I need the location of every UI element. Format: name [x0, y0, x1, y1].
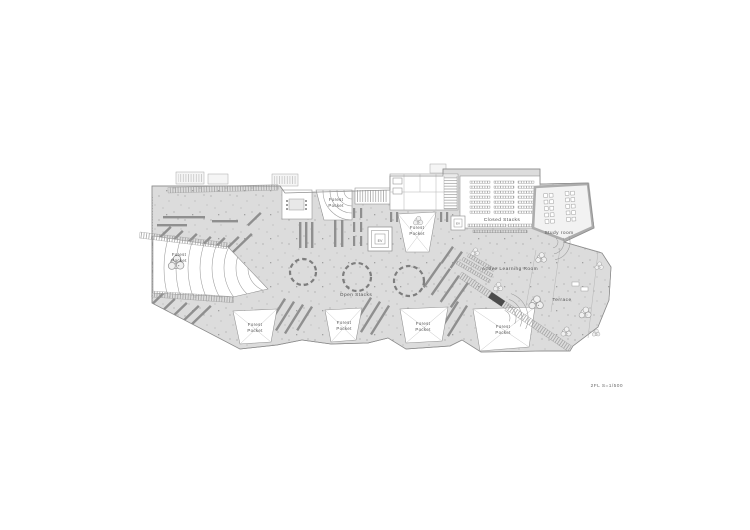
label-forest-pocket-b1-2: Pocket [247, 328, 263, 333]
label-forest-pocket-top-1: Forest [329, 197, 344, 202]
label-active-learning-room: Active Learning Room [482, 266, 538, 272]
elevator-core-small: EV [451, 216, 465, 230]
label-forest-pocket-topright-2: Pocket [409, 231, 425, 236]
label-forest-pocket-b4-1: Forest [496, 324, 511, 329]
meeting-room [282, 190, 312, 219]
label-forest-pocket-top-2: Pocket [328, 203, 344, 208]
label-open-stacks: Open Stacks [340, 292, 373, 298]
label-closed-stacks: Closed Stacks [484, 217, 521, 223]
label-forest-pocket-b3-2: Pocket [415, 327, 431, 332]
elevator-small-label: EV [456, 221, 460, 225]
label-forest-pocket-b1-1: Forest [248, 322, 263, 327]
label-forest-pocket-b4-2: Pocket [495, 330, 511, 335]
label-forest-pocket-topright-1: Forest [410, 225, 425, 230]
elevator-label: EV [378, 239, 383, 243]
label-forest-pocket-b2-1: Forest [337, 320, 352, 325]
label-forest-pocket-b2-2: Pocket [336, 326, 352, 331]
floor-plan-page: EV EV [0, 0, 750, 530]
plan-caption: 2FL S=1/500 [591, 383, 623, 389]
label-forest-pocket-b3-1: Forest [416, 321, 431, 326]
elevator-core: EV [368, 227, 392, 251]
closed-stacks-room [460, 176, 540, 233]
service-core-block [390, 174, 458, 210]
floor-plan-drawing: EV EV [0, 0, 750, 530]
label-forest-pocket-left-2: Pocket [171, 258, 187, 263]
label-study-room: Study room [544, 230, 573, 236]
label-terrace: Terrace [552, 297, 571, 303]
forest-pocket-bottom-2 [325, 308, 362, 342]
label-forest-pocket-left-1: Forest [172, 252, 187, 257]
